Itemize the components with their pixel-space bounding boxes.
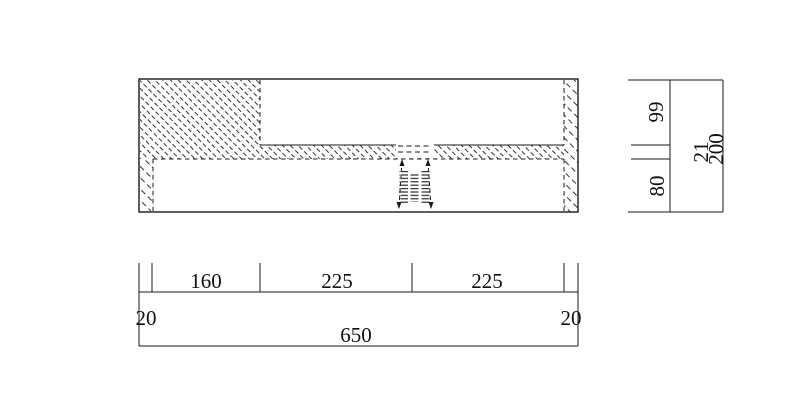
hatch-top-left-block xyxy=(140,80,260,159)
section-view xyxy=(139,79,578,212)
dim-label-200: 200 xyxy=(704,133,728,165)
coil-right xyxy=(422,171,431,204)
dim-label-80: 80 xyxy=(645,176,669,197)
dim-label-160: 160 xyxy=(190,269,222,293)
hatch-left-wall xyxy=(140,159,153,211)
dim-label-650: 650 xyxy=(340,323,372,347)
hatch-right-wall xyxy=(564,80,578,212)
coil-left xyxy=(399,171,408,204)
grout-sleeve-detail xyxy=(396,141,434,209)
section-drawing-svg: 99 21 200 80 20 160 225 225 20 650 xyxy=(0,0,799,408)
band-interruption-patch xyxy=(396,141,434,158)
dim-label-225-a: 225 xyxy=(321,269,353,293)
coil-center xyxy=(411,173,419,202)
dim-label-20-left: 20 xyxy=(136,306,157,330)
dim-label-99: 99 xyxy=(644,102,668,123)
dim-label-225-b: 225 xyxy=(471,269,503,293)
right-dimension-chain: 99 21 200 80 xyxy=(628,80,728,212)
arrow-up-right xyxy=(426,159,431,166)
arrow-up-left xyxy=(400,159,405,166)
bottom-dimension-chain: 20 160 225 225 20 650 xyxy=(136,263,582,347)
drawing-canvas: 99 21 200 80 20 160 225 225 20 650 xyxy=(0,0,799,408)
dim-label-20-right: 20 xyxy=(561,306,582,330)
